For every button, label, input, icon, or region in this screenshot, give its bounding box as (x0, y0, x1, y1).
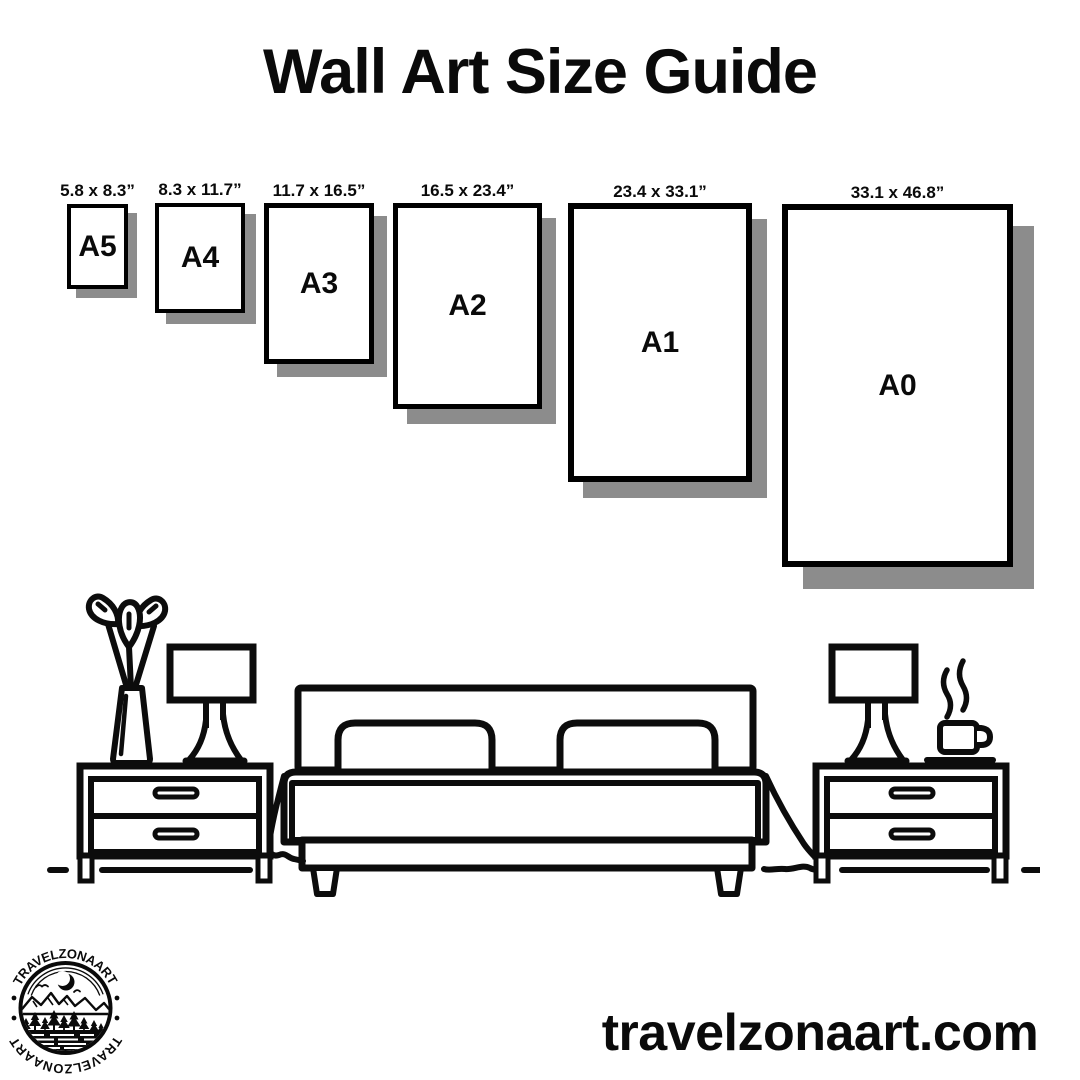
pillow-right (560, 723, 715, 776)
size-box-a1: 23.4 x 33.1” A1 (568, 203, 752, 482)
brand-logo: TRAVELZONAART TRAVELZONAART (0, 942, 131, 1074)
duvet (292, 783, 758, 840)
size-name-a3: A3 (300, 267, 338, 301)
bed-leg-right (717, 868, 741, 894)
bed-base (302, 840, 752, 868)
size-name-a5: A5 (78, 230, 116, 264)
page-title: Wall Art Size Guide (0, 36, 1080, 108)
steam-right (960, 661, 967, 710)
pillow-left (338, 723, 492, 776)
size-box-a2: 16.5 x 23.4” A2 (393, 203, 542, 409)
steam-left (944, 670, 951, 717)
table-lamp-left-icon (170, 647, 253, 761)
double-bed-icon (269, 688, 820, 894)
coffee-cup-icon (927, 661, 993, 760)
size-dimensions-a4: 8.3 x 11.7” (158, 180, 241, 200)
mountains-icon (18, 993, 113, 1014)
size-dimensions-a3: 11.7 x 16.5” (273, 181, 366, 201)
blanket-drape-right (764, 776, 820, 870)
size-name-a4: A4 (181, 241, 219, 275)
bedroom-illustration-icon (40, 590, 1040, 905)
nightstand-left-icon (80, 766, 270, 881)
size-name-a0: A0 (878, 369, 916, 403)
nightstand-right-icon (816, 766, 1006, 881)
cup-body (940, 723, 977, 752)
cup-handle (977, 728, 990, 745)
wall-art-size-guide-poster: Wall Art Size Guide 5.8 x 8.3” A5 8.3 x … (0, 0, 1080, 1080)
size-name-a2: A2 (448, 289, 486, 323)
size-dimensions-a5: 5.8 x 8.3” (60, 181, 135, 201)
size-box-a0: 33.1 x 46.8” A0 (782, 204, 1013, 567)
size-name-a1: A1 (641, 326, 679, 360)
size-box-a4: 8.3 x 11.7” A4 (155, 203, 245, 313)
size-box-a3: 11.7 x 16.5” A3 (264, 203, 374, 364)
flower-vase-icon (89, 597, 165, 763)
vase (113, 688, 150, 763)
size-box-a5: 5.8 x 8.3” A5 (67, 204, 128, 289)
table-lamp-right-icon (832, 647, 915, 761)
bed-leg-left (313, 868, 337, 894)
size-dimensions-a1: 23.4 x 33.1” (613, 182, 707, 202)
website-url: travelzonaart.com (580, 1003, 1060, 1063)
size-dimensions-a0: 33.1 x 46.8” (851, 183, 945, 203)
size-dimensions-a2: 16.5 x 23.4” (421, 181, 515, 201)
